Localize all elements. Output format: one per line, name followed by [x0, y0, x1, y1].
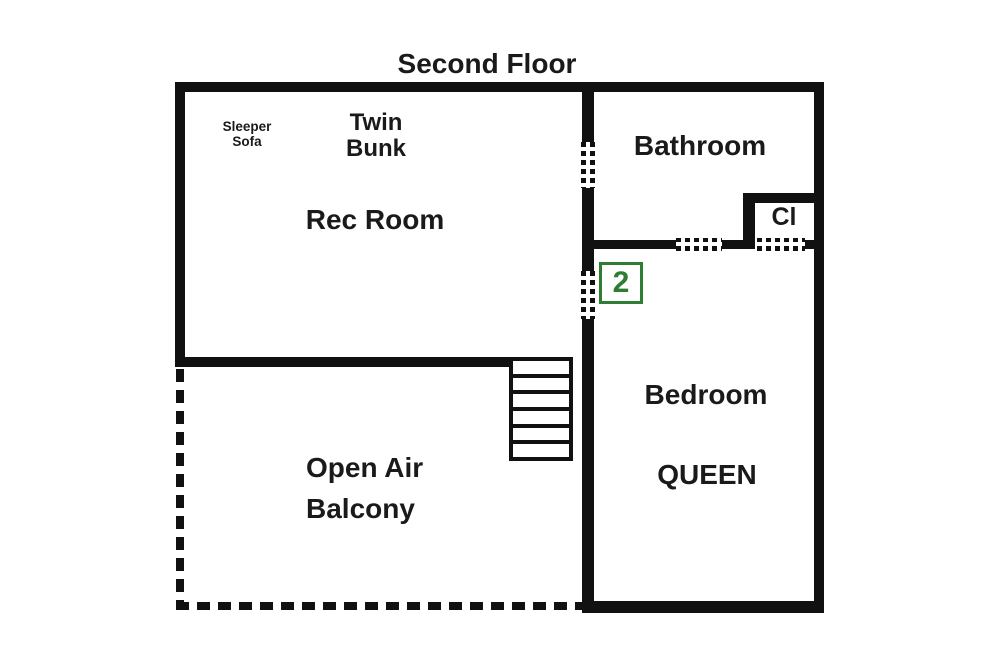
- wall-central-upper: [582, 82, 594, 143]
- closet-label: Cl: [752, 204, 816, 230]
- wall-central-lower: [582, 318, 594, 613]
- bedroom-label: Bedroom: [606, 380, 806, 409]
- wall-bathroom-bottom-middle: [722, 240, 743, 249]
- wall-recroom-bottom: [175, 357, 513, 367]
- wall-closet-top: [743, 193, 824, 203]
- balcony-boundary-left: [176, 369, 184, 609]
- wall-bathroom-bottom-right: [805, 240, 814, 249]
- wall-bathroom-bottom-left: [582, 240, 676, 249]
- stair-step: [513, 411, 569, 428]
- floor-number: 2: [613, 266, 630, 300]
- sleeper-sofa-label: Sleeper Sofa: [197, 119, 297, 149]
- wall-top: [175, 82, 824, 92]
- door-bathroom: [581, 142, 595, 188]
- balcony-boundary-bottom: [176, 602, 583, 610]
- door-closet: [757, 238, 805, 251]
- bathroom-label: Bathroom: [600, 131, 800, 160]
- bed-type-label: QUEEN: [607, 460, 807, 489]
- stair-step: [513, 378, 569, 395]
- twin-bunk-label: Twin Bunk: [301, 110, 451, 162]
- balcony-label: Open Air Balcony: [306, 447, 526, 529]
- stair-step: [513, 361, 569, 378]
- stair-step: [513, 394, 569, 411]
- floor-plan: Second Floor 2 Sleeper Sofa Twin Bunk Re…: [0, 0, 1000, 667]
- wall-bedroom-bottom: [582, 601, 824, 613]
- wall-right: [814, 82, 824, 613]
- floor-title: Second Floor: [287, 49, 687, 78]
- wall-central-middle: [582, 187, 594, 272]
- rec-room-label: Rec Room: [275, 205, 475, 234]
- floor-number-badge: 2: [599, 262, 643, 304]
- door-bedroom: [581, 271, 595, 319]
- door-bathroom-south: [676, 238, 722, 251]
- stairs: [509, 357, 573, 461]
- wall-left: [175, 82, 185, 367]
- stair-step: [513, 428, 569, 445]
